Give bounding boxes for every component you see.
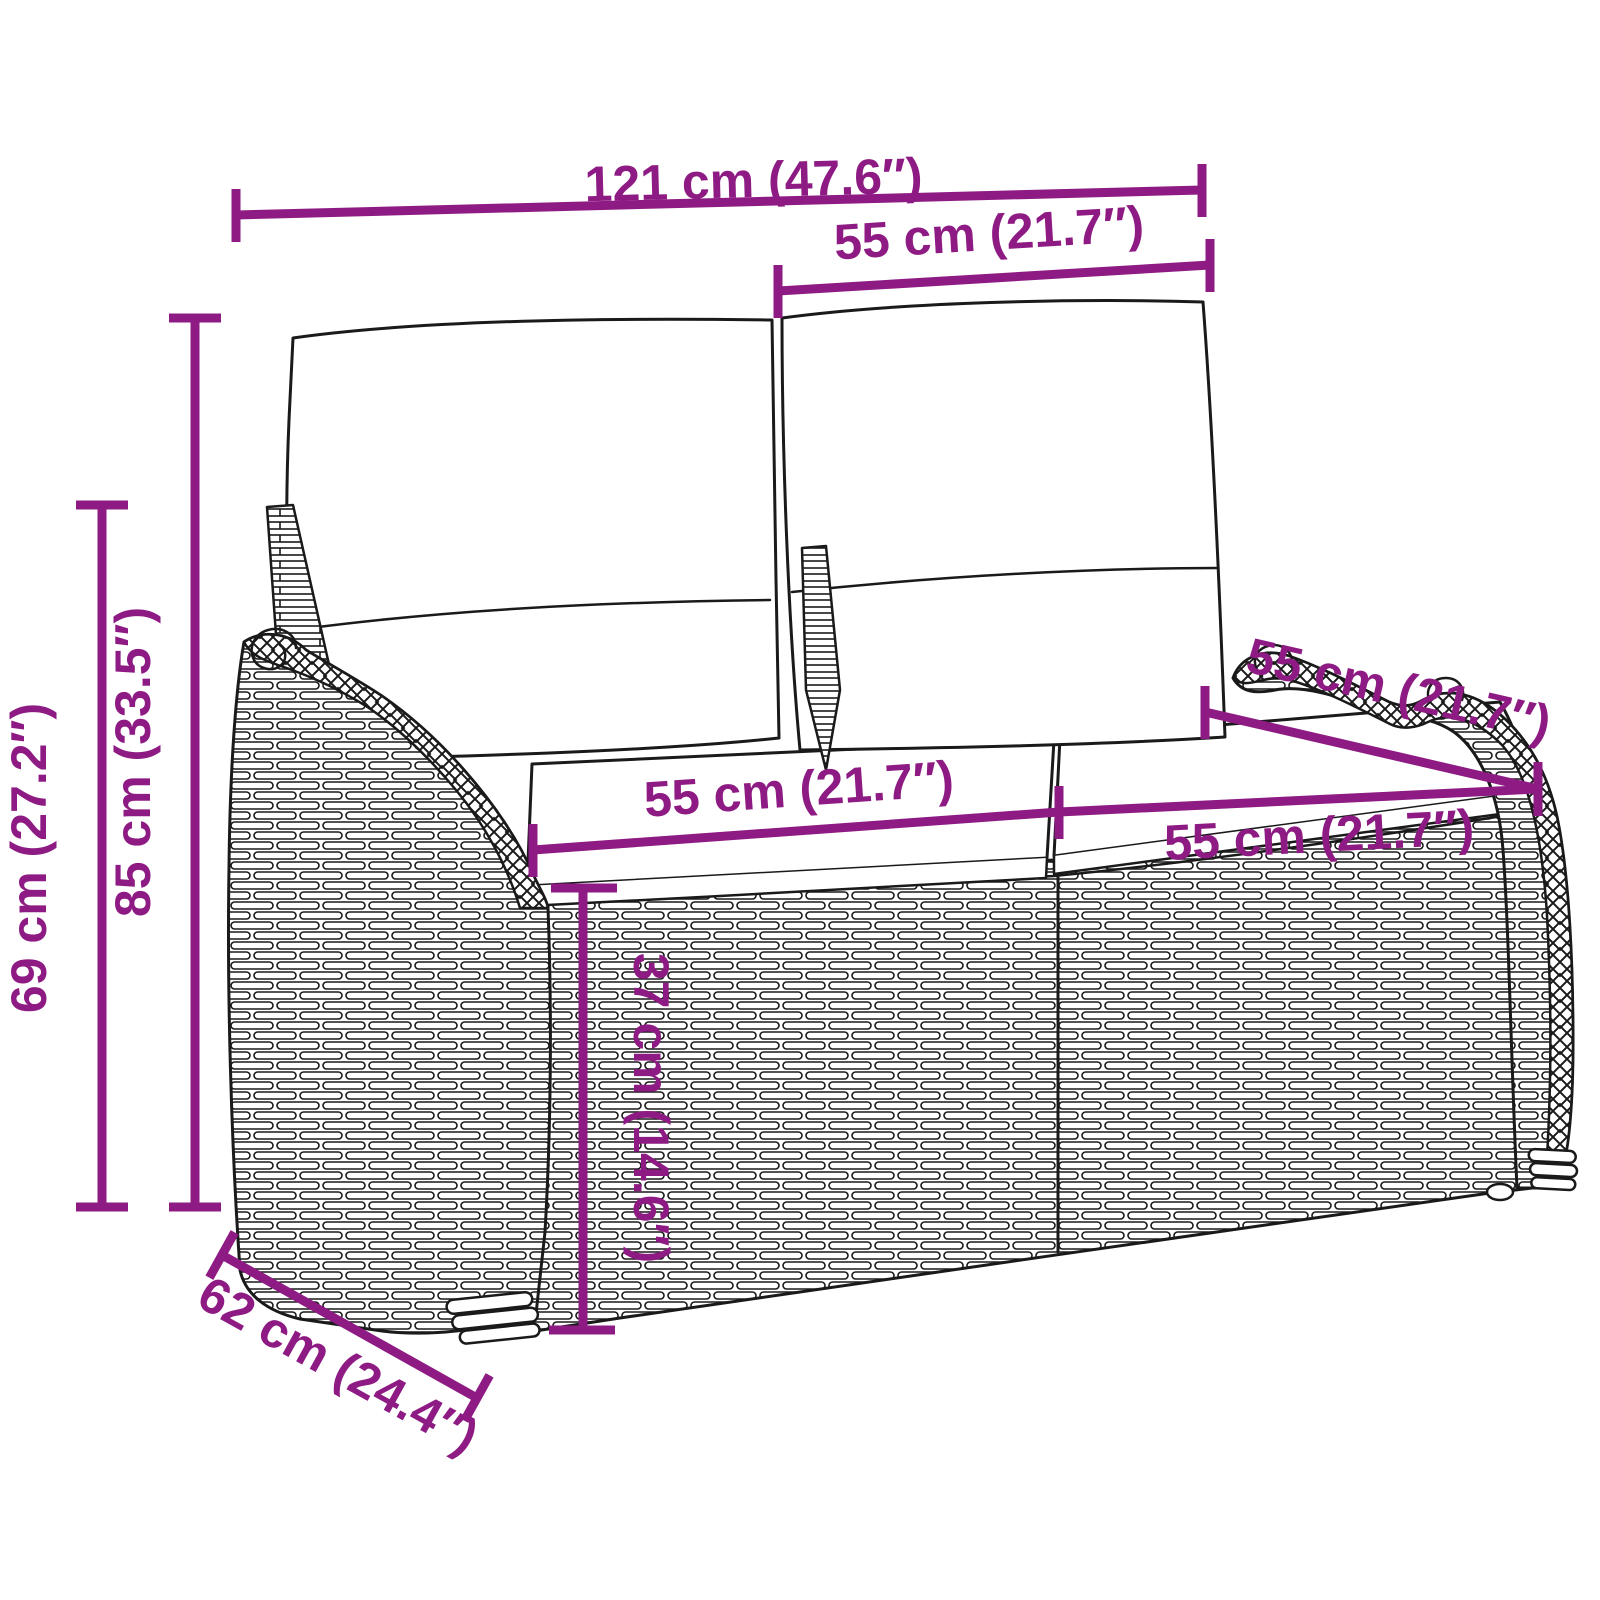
foot-back-right: [1527, 1149, 1578, 1191]
product-dimension-diagram: 121 cm (47.6″) 55 cm (21.7″) 85 cm (33.5…: [0, 0, 1600, 1600]
dim-seat-height-label: 37 cm (14.6″): [623, 953, 679, 1263]
dim-overall-width-label: 121 cm (47.6″): [584, 148, 923, 213]
foot-front-right: [1487, 1184, 1513, 1200]
back-cushion-right: [782, 301, 1225, 750]
dim-overall-height-label: 85 cm (33.5″): [105, 607, 161, 917]
dim-backrest-width-label: 55 cm (21.7″): [832, 196, 1145, 271]
dim-armrest-height-label: 69 cm (27.2″): [1, 703, 57, 1013]
diagram-canvas: 121 cm (47.6″) 55 cm (21.7″) 85 cm (33.5…: [0, 0, 1600, 1600]
dim-overall-height-line: [169, 318, 221, 1207]
foot-front-left: [446, 1291, 540, 1345]
